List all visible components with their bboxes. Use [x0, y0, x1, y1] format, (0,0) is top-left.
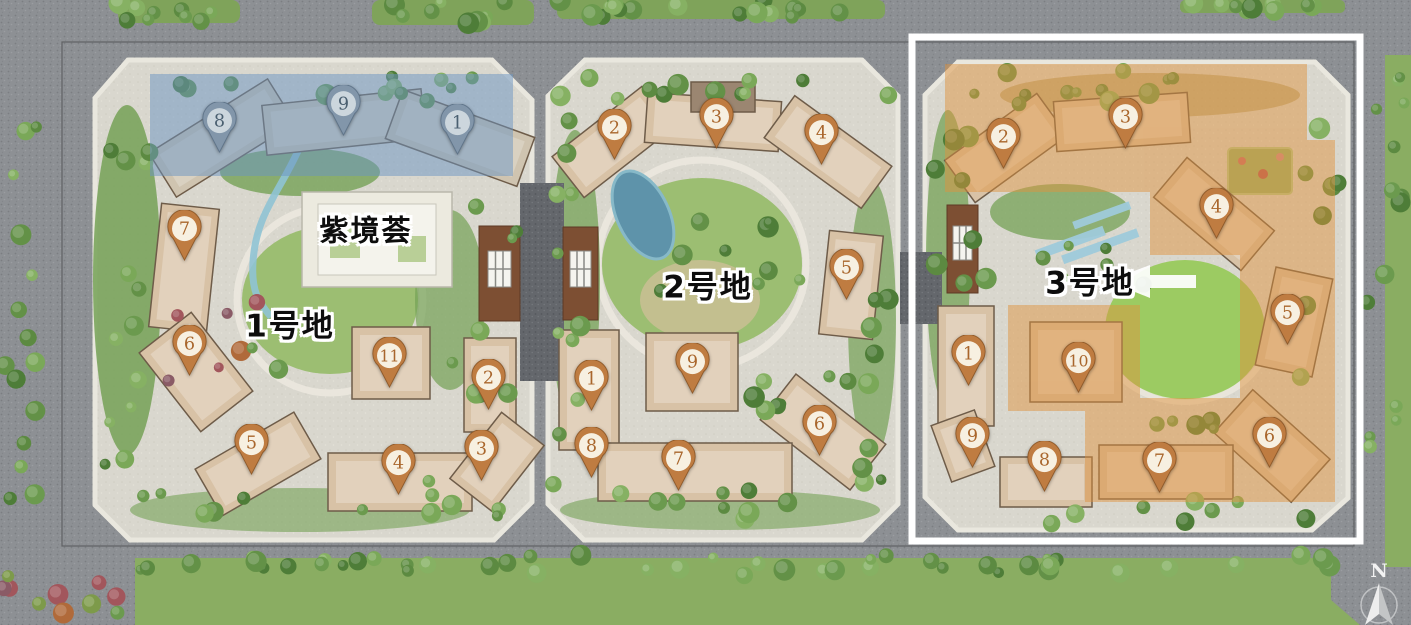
compass-north-label: N — [1370, 560, 1387, 582]
building-plot1-11 — [352, 327, 430, 399]
building-plot2-1 — [559, 330, 619, 450]
building-plot2-9 — [646, 333, 738, 411]
building-plot3-8 — [1000, 457, 1092, 507]
clubhouse-building — [302, 192, 452, 287]
plot1-blue-highlight-overlay — [150, 74, 513, 176]
building-plot3-1 — [938, 306, 994, 426]
building-plot1-7 — [149, 203, 220, 332]
map-canvas: N — [0, 0, 1411, 625]
gate-plot2-west — [563, 227, 598, 320]
site-plan-map: N 1号地2号地3号地紫境荟 8917611254323451968723451… — [0, 0, 1411, 625]
